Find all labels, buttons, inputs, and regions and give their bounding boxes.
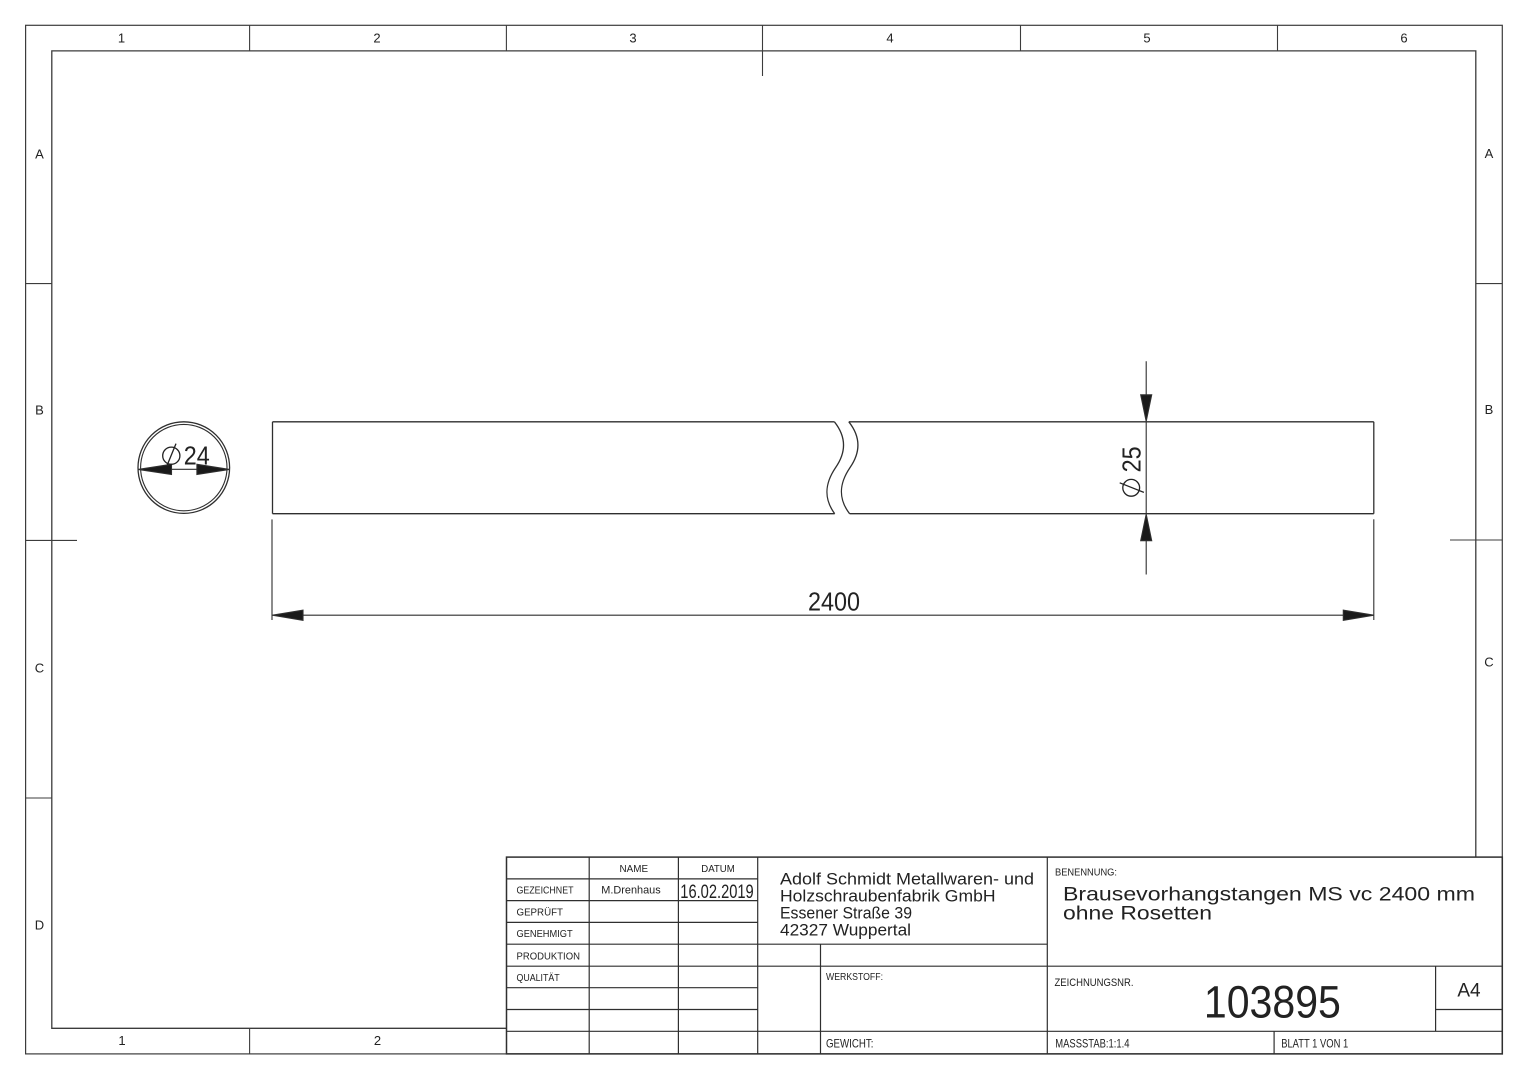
svg-text:PRODUKTION: PRODUKTION bbox=[517, 951, 581, 963]
svg-text:C: C bbox=[1484, 655, 1493, 670]
svg-text:A: A bbox=[35, 147, 44, 162]
svg-text:25: 25 bbox=[1119, 446, 1147, 472]
svg-text:103895: 103895 bbox=[1204, 976, 1341, 1027]
svg-text:Holzschraubenfabrik GmbH: Holzschraubenfabrik GmbH bbox=[780, 888, 996, 906]
svg-text:NAME: NAME bbox=[620, 863, 649, 875]
svg-text:GENEHMIGT: GENEHMIGT bbox=[517, 928, 574, 940]
svg-text:Adolf Schmidt Metallwaren- und: Adolf Schmidt Metallwaren- und bbox=[780, 871, 1034, 889]
svg-text:1: 1 bbox=[118, 30, 125, 45]
svg-text:2: 2 bbox=[374, 1033, 381, 1048]
svg-text:ohne Rosetten: ohne Rosetten bbox=[1063, 904, 1212, 925]
svg-text:24: 24 bbox=[184, 443, 210, 471]
svg-text:BLATT 1 VON 1: BLATT 1 VON 1 bbox=[1281, 1036, 1348, 1050]
svg-text:D: D bbox=[35, 918, 44, 933]
svg-text:Brausevorhangstangen MS vc 240: Brausevorhangstangen MS vc 2400 mm bbox=[1063, 884, 1475, 905]
svg-text:A: A bbox=[1485, 146, 1494, 161]
svg-text:A4: A4 bbox=[1457, 981, 1481, 1002]
svg-text:M.Drenhaus: M.Drenhaus bbox=[601, 885, 661, 897]
svg-text:4: 4 bbox=[886, 30, 893, 45]
svg-text:B: B bbox=[35, 402, 44, 417]
svg-text:2400: 2400 bbox=[808, 589, 860, 617]
svg-text:42327 Wuppertal: 42327 Wuppertal bbox=[780, 922, 911, 940]
svg-text:QUALITÄT: QUALITÄT bbox=[517, 972, 561, 984]
svg-text:MASSSTAB:1:1.4: MASSSTAB:1:1.4 bbox=[1055, 1036, 1130, 1050]
svg-text:Essener Straße 39: Essener Straße 39 bbox=[780, 905, 912, 923]
svg-text:3: 3 bbox=[629, 30, 636, 45]
svg-text:C: C bbox=[35, 660, 44, 675]
svg-text:DATUM: DATUM bbox=[701, 863, 735, 875]
svg-text:1: 1 bbox=[118, 1033, 125, 1048]
svg-text:ZEICHNUNGSNR.: ZEICHNUNGSNR. bbox=[1055, 977, 1134, 989]
svg-text:WERKSTOFF:: WERKSTOFF: bbox=[826, 971, 883, 983]
svg-text:GEWICHT:: GEWICHT: bbox=[826, 1036, 873, 1050]
svg-text:16.02.2019: 16.02.2019 bbox=[680, 882, 753, 903]
svg-text:B: B bbox=[1485, 402, 1494, 417]
svg-text:GEPRÜFT: GEPRÜFT bbox=[517, 906, 564, 918]
svg-text:BENENNUNG:: BENENNUNG: bbox=[1055, 866, 1117, 878]
svg-text:6: 6 bbox=[1400, 30, 1407, 45]
svg-text:2: 2 bbox=[373, 30, 380, 45]
svg-text:GEZEICHNET: GEZEICHNET bbox=[517, 885, 574, 897]
svg-text:5: 5 bbox=[1143, 30, 1150, 45]
